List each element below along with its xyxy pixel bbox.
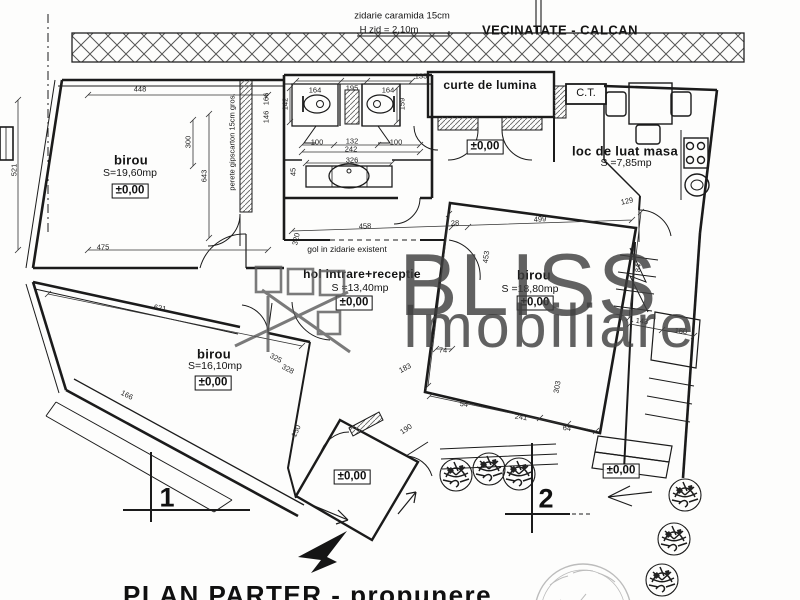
- elevation-mark: ±0,00: [195, 376, 232, 391]
- plan-linework: [0, 0, 800, 600]
- plan-title: PLAN PARTER - propunere: [123, 580, 492, 600]
- elevation-mark: ±0,00: [336, 296, 373, 311]
- section-lines: [123, 443, 590, 533]
- dimension-label: 475: [97, 243, 110, 252]
- dimension-label: 164: [382, 86, 395, 95]
- dimension-label: 453: [481, 250, 492, 264]
- dimension-label: 499: [534, 214, 547, 224]
- dimension-label: 300: [184, 136, 193, 149]
- dimension-label: 100: [311, 138, 324, 147]
- room-area-dining: S =7,85mp: [600, 157, 651, 169]
- dimension-label: 458: [359, 221, 372, 230]
- dimension-lines: [15, 78, 697, 434]
- room-label-birou-1: birou: [114, 153, 148, 168]
- dimension-label: 241: [514, 412, 528, 423]
- elevation-mark: ±0,00: [467, 140, 504, 155]
- dimension-label: 159: [398, 98, 407, 111]
- dimension-label: 195: [346, 84, 359, 93]
- elevation-mark: ±0,00: [112, 184, 149, 199]
- room-label-birou-2: birou: [517, 268, 551, 283]
- dimension-label: 166: [262, 93, 271, 106]
- dimension-label: 164: [309, 86, 322, 95]
- room-label-ct: C.T.: [576, 87, 596, 99]
- dimension-label: 64: [562, 423, 572, 433]
- note-masonry: zidarie caramida 15cm: [354, 11, 450, 22]
- dimension-label: 84: [633, 264, 643, 273]
- annotation-gol: gol in zidarie existent: [307, 244, 386, 254]
- room-label-hol: hol intrare+receptie: [303, 267, 421, 281]
- note-neighbor: VECINATATE - CALCAN: [482, 23, 638, 38]
- room-area-birou-1: S=19,60mp: [103, 167, 157, 179]
- entrance-arrow: [298, 531, 347, 573]
- dimension-label: 100: [390, 138, 403, 147]
- elevation-mark: ±0,00: [517, 296, 554, 311]
- neighbor-wall-hatch: [72, 33, 744, 62]
- section-marker-2: 2: [538, 484, 553, 515]
- room-area-hol: S =13,40mp: [332, 282, 389, 294]
- annotation-perete: perete gipscarton 15cm gros.: [228, 93, 237, 190]
- section-marker-1: 1: [159, 483, 174, 514]
- dimension-label: 326: [346, 156, 359, 165]
- gips-wall-hatch: [240, 80, 252, 212]
- room-area-birou-2: S =18,80mp: [502, 283, 559, 295]
- dimension-label: 643: [200, 170, 209, 183]
- dimension-label: 521: [10, 164, 19, 177]
- room-birou-3-walls: [26, 282, 310, 516]
- bathroom-block: [284, 75, 438, 224]
- room-label-light-court: curte de lumina: [443, 78, 536, 92]
- dimension-label: 54: [459, 399, 469, 409]
- dimension-label: 160: [674, 326, 687, 336]
- dimension-label: 242: [345, 145, 358, 154]
- dimension-label: 146: [262, 111, 271, 124]
- dimension-label: 143: [635, 316, 648, 326]
- dimension-label: 28: [451, 218, 460, 227]
- dimension-label: 142: [281, 98, 290, 111]
- room-birou-2-walls: [425, 203, 636, 433]
- elevation-mark: ±0,00: [334, 470, 371, 485]
- dimension-label: 74: [439, 346, 447, 355]
- dimension-label: 45: [289, 168, 298, 176]
- stair-corridor: [592, 196, 700, 506]
- dimension-label: 135: [415, 72, 428, 81]
- dimension-label: 448: [134, 85, 147, 94]
- elevation-mark: ±0,00: [603, 464, 640, 479]
- floor-plan-scan: zidarie caramida 15cm H zid = 2,10m VECI…: [0, 0, 800, 600]
- stamp: [535, 564, 631, 600]
- note-wall-height: H zid = 2,10m: [360, 25, 419, 36]
- room-area-birou-3: S=16,10mp: [188, 360, 242, 372]
